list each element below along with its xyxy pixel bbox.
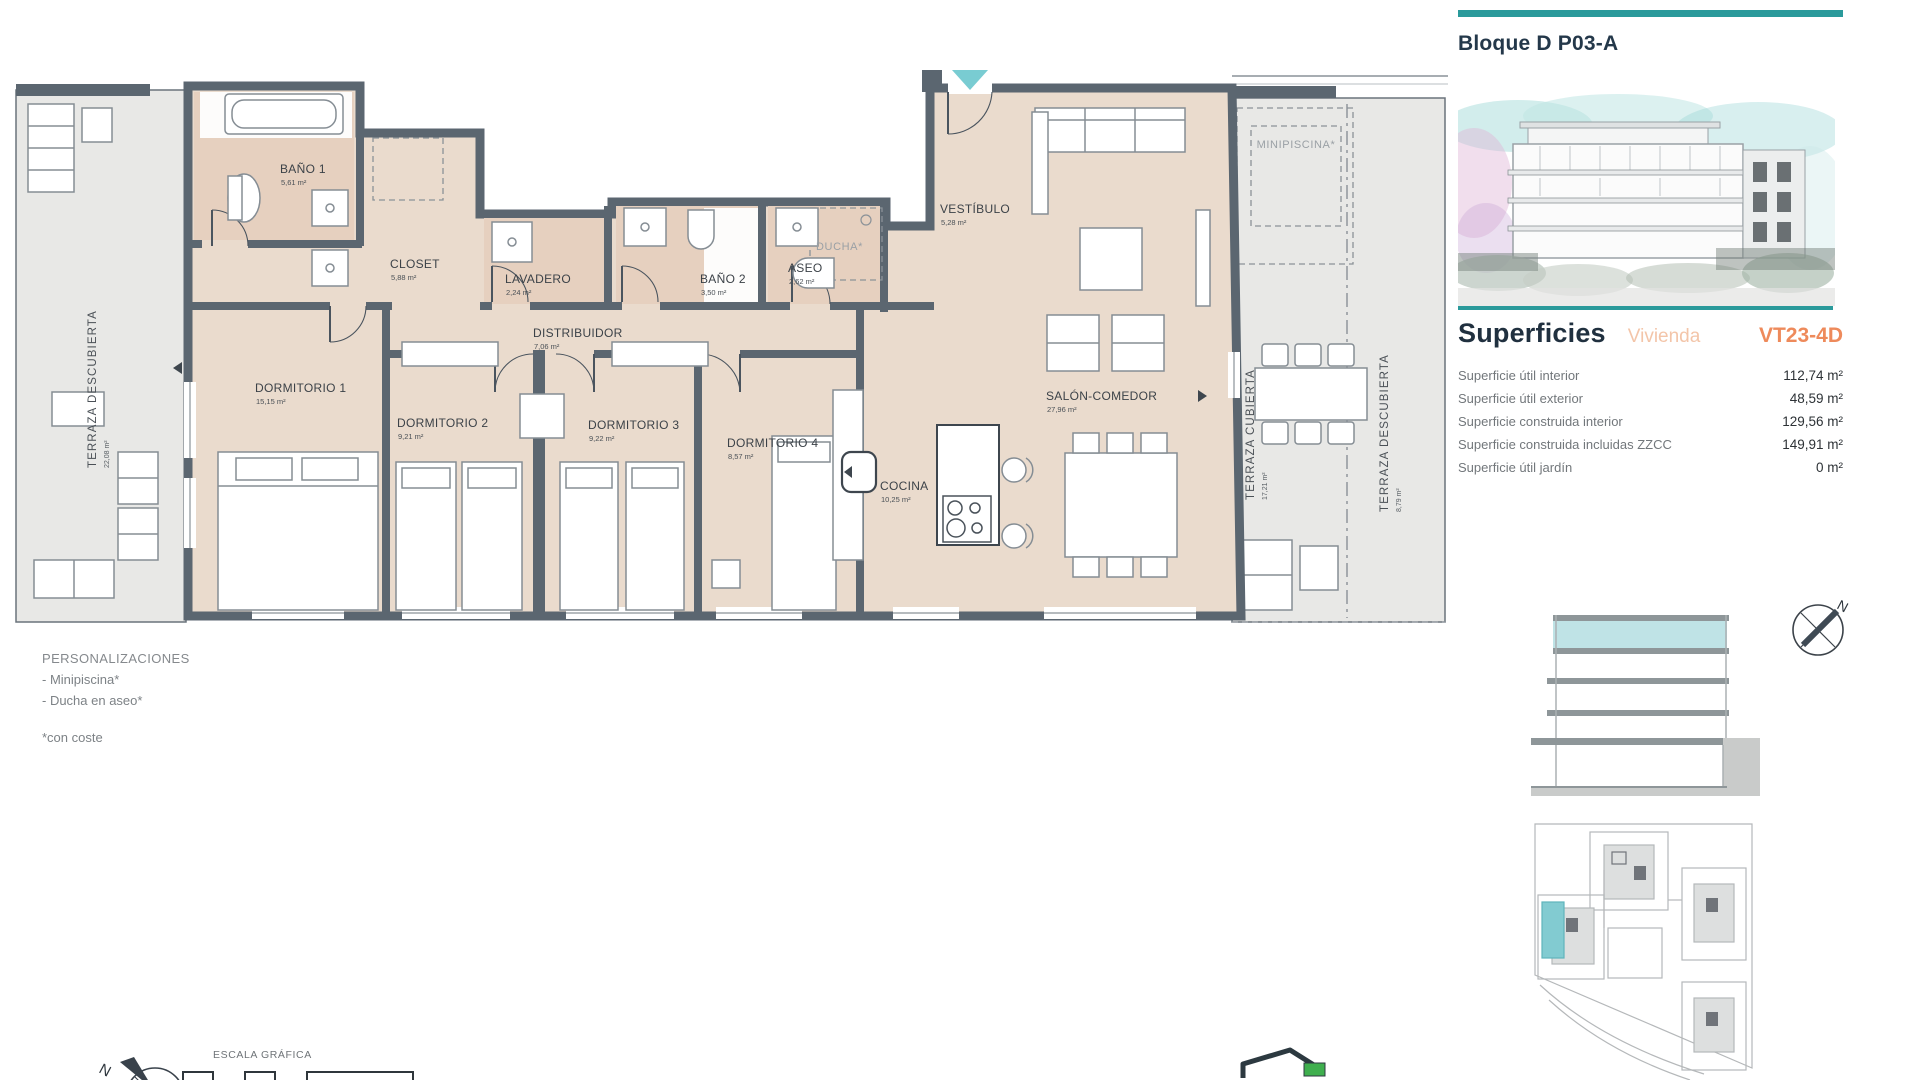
section-highlight-floor	[1553, 621, 1727, 648]
svg-text:8,79 m²: 8,79 m²	[1396, 488, 1403, 512]
svg-text:22,08 m²: 22,08 m²	[104, 440, 111, 468]
sofa-icon	[1035, 108, 1185, 152]
wall	[16, 84, 150, 96]
nightstand-icon	[712, 560, 740, 588]
terrace-left: TERRAZA DESCUBIERTA 22,08 m²	[16, 84, 186, 622]
bed-icon	[218, 452, 378, 610]
svg-text:DORMITORIO 1: DORMITORIO 1	[255, 381, 346, 395]
svg-text:ASEO: ASEO	[788, 261, 823, 275]
svg-text:BAÑO 1: BAÑO 1	[280, 162, 326, 176]
svg-text:DORMITORIO 3: DORMITORIO 3	[588, 418, 679, 432]
row-label: Superficie útil jardín	[1458, 460, 1572, 475]
hob-icon	[943, 496, 991, 542]
row-value: 149,91 m²	[1782, 437, 1843, 452]
personalizaciones-footnote: *con coste	[42, 727, 190, 748]
table-row: Superficie construida interior 129,56 m²	[1458, 410, 1843, 433]
personalizaciones-item: - Minipiscina*	[42, 669, 190, 690]
bed-icon	[560, 462, 618, 610]
svg-text:DISTRIBUIDOR: DISTRIBUIDOR	[533, 326, 623, 340]
row-label: Superficie útil exterior	[1458, 391, 1583, 406]
terrace-right: MINIPISCINA* TERRAZA CUBIERTA 17,21 m² T…	[1232, 76, 1448, 622]
site-building	[1682, 982, 1746, 1070]
sink-icon	[776, 208, 818, 246]
svg-text:DORMITORIO 2: DORMITORIO 2	[397, 416, 488, 430]
section-diagram	[1531, 615, 1760, 796]
dining-table-icon	[1065, 433, 1177, 577]
table-row: Superficie útil jardín 0 m²	[1458, 456, 1843, 479]
row-label: Superficie útil interior	[1458, 368, 1579, 383]
washer-icon	[492, 222, 532, 262]
svg-text:CLOSET: CLOSET	[390, 257, 440, 271]
svg-text:8,57 m²: 8,57 m²	[728, 452, 754, 461]
svg-text:2,24 m²: 2,24 m²	[506, 288, 532, 297]
svg-text:5,88 m²: 5,88 m²	[391, 273, 417, 282]
accent-bar	[1458, 10, 1843, 17]
side-table-icon	[1080, 228, 1142, 290]
block-title: Bloque D P03-A	[1458, 32, 1618, 56]
compass-north-label: N	[96, 1061, 114, 1080]
svg-text:TERRAZA DESCUBIERTA: TERRAZA DESCUBIERTA	[1379, 354, 1391, 512]
room-label-ducha: DUCHA*	[816, 241, 863, 253]
svg-text:9,22 m²: 9,22 m²	[589, 434, 615, 443]
scale-bar	[183, 1072, 413, 1080]
svg-text:2,62 m²: 2,62 m²	[789, 277, 815, 286]
terrace-dining-icon	[1255, 344, 1367, 444]
sink-icon	[312, 250, 348, 286]
room-label-minipiscina: MINIPISCINA*	[1257, 139, 1336, 151]
personalizaciones-item: - Ducha en aseo*	[42, 690, 190, 711]
bed-icon	[462, 462, 522, 610]
row-value: 129,56 m²	[1782, 414, 1843, 429]
bed-icon	[396, 462, 456, 610]
nightstand-icon	[520, 394, 564, 438]
armchair-icon	[1047, 315, 1099, 371]
armchair-icon	[1112, 315, 1164, 371]
svg-text:5,61 m²: 5,61 m²	[281, 178, 307, 187]
bed-icon	[772, 436, 836, 610]
svg-text:COCINA: COCINA	[880, 479, 928, 493]
compass-icon: N	[1793, 597, 1851, 655]
row-value: 0 m²	[1816, 460, 1843, 475]
personalizaciones-title: PERSONALIZACIONES	[42, 648, 190, 669]
sink-icon	[624, 208, 666, 246]
scale-label: ESCALA GRÁFICA	[213, 1049, 312, 1061]
svg-text:3,50 m²: 3,50 m²	[701, 288, 727, 297]
vivienda-label: Vivienda	[1628, 326, 1701, 348]
site-building-highlighted	[1538, 895, 1604, 979]
svg-text:5,28 m²: 5,28 m²	[941, 218, 967, 227]
cabinet-icon	[1032, 112, 1048, 214]
site-building	[1682, 868, 1746, 960]
wardrobe-icon	[612, 342, 708, 366]
wardrobe-icon	[402, 342, 498, 366]
superficies-header: Superficies Vivienda VT23-4D	[1458, 318, 1843, 349]
svg-text:SALÓN-COMEDOR: SALÓN-COMEDOR	[1046, 388, 1157, 403]
cabinet-icon	[1196, 210, 1210, 306]
svg-text:27,96 m²: 27,96 m²	[1047, 405, 1077, 414]
divider-line	[1458, 306, 1833, 310]
svg-text:VESTÍBULO: VESTÍBULO	[940, 201, 1010, 216]
superficies-table: Superficie útil interior 112,74 m² Super…	[1458, 364, 1843, 479]
svg-text:10,25 m²: 10,25 m²	[881, 495, 911, 504]
sink-icon	[312, 190, 348, 226]
info-panel: Bloque D P03-A	[1458, 0, 1843, 520]
bed-icon	[626, 462, 684, 610]
table-row: Superficie construida incluidas ZZCC 149…	[1458, 433, 1843, 456]
svg-text:17,21 m²: 17,21 m²	[1262, 472, 1269, 500]
svg-text:TERRAZA DESCUBIERTA: TERRAZA DESCUBIERTA	[87, 310, 99, 468]
row-label: Superficie construida incluidas ZZCC	[1458, 437, 1672, 452]
unit-code: VT23-4D	[1759, 324, 1843, 348]
table-row: Superficie útil interior 112,74 m²	[1458, 364, 1843, 387]
site-highlight-unit	[1542, 902, 1564, 958]
svg-text:DORMITORIO 4: DORMITORIO 4	[727, 436, 818, 450]
house-logo-icon	[1243, 1050, 1325, 1078]
superficies-title: Superficies	[1458, 318, 1606, 349]
table-row: Superficie útil exterior 48,59 m²	[1458, 387, 1843, 410]
building-illustration	[1458, 88, 1835, 306]
wall	[1232, 86, 1336, 98]
compass-icon: N	[96, 1057, 184, 1080]
row-label: Superficie construida interior	[1458, 414, 1623, 429]
svg-text:TERRAZA CUBIERTA: TERRAZA CUBIERTA	[1245, 369, 1257, 500]
row-value: 112,74 m²	[1783, 368, 1843, 383]
row-value: 48,59 m²	[1790, 391, 1843, 406]
svg-text:9,21 m²: 9,21 m²	[398, 432, 424, 441]
site-building	[1590, 832, 1668, 910]
svg-text:7,06 m²: 7,06 m²	[534, 342, 560, 351]
site-plan	[1535, 824, 1752, 1080]
svg-text:15,15 m²: 15,15 m²	[256, 397, 286, 406]
svg-text:LAVADERO: LAVADERO	[505, 272, 571, 286]
svg-text:BAÑO 2: BAÑO 2	[700, 272, 746, 286]
personalizaciones: PERSONALIZACIONES - Minipiscina* - Ducha…	[42, 648, 190, 748]
toilet-icon	[688, 210, 714, 249]
